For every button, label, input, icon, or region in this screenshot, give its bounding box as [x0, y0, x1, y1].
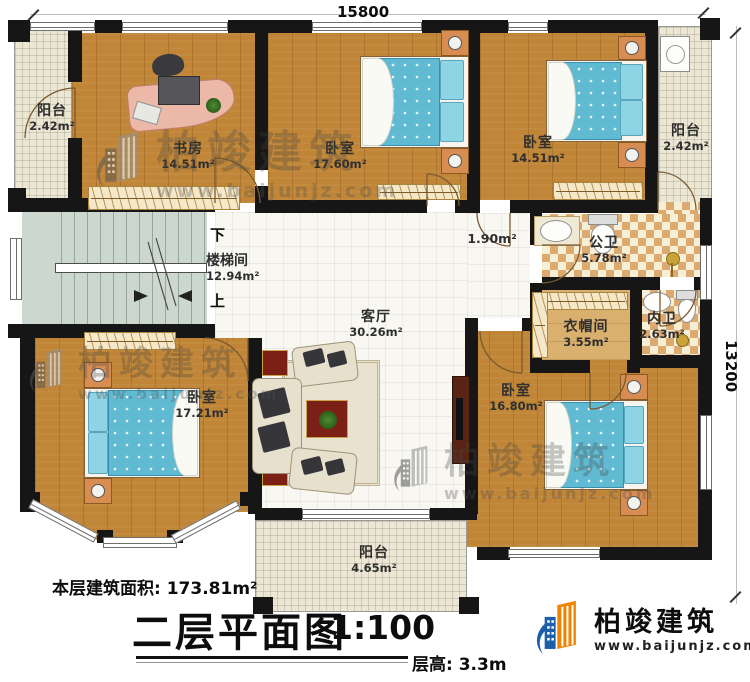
page-title: 二层平面图: [132, 600, 347, 658]
wardrobe-rack: [544, 292, 628, 310]
brand-logo-icon: [532, 598, 586, 656]
washing-machine: [660, 36, 690, 72]
title-underline: [136, 656, 408, 659]
room-bedroom-br-label: 卧室 16.80m²: [468, 384, 564, 413]
wardrobe-rack: [377, 184, 461, 200]
window: [312, 22, 422, 31]
floor-height-text: 层高: 3.3m: [412, 650, 507, 675]
brand-logo-block: 柏竣建筑 www.baijunjz.com: [532, 598, 750, 656]
brand-name: 柏竣建筑: [594, 600, 750, 639]
bed-pillow: [440, 102, 464, 142]
washing-machine-door: [666, 45, 685, 64]
nightstand: [441, 148, 469, 174]
window-bay: [103, 537, 177, 548]
plant: [319, 411, 337, 429]
sliding-door: [302, 509, 430, 519]
window: [122, 22, 228, 31]
room-balcony-tr-label: 阳台 2.42m²: [638, 124, 734, 153]
wall-segment: [455, 200, 467, 213]
wall-segment: [255, 26, 268, 170]
room-bedroom-tr-label: 卧室 14.51m²: [490, 136, 586, 165]
wardrobe-rack: [88, 186, 240, 210]
room-hall-label: 1.90m²: [444, 232, 540, 246]
wall-segment: [627, 360, 640, 373]
room-public-bath-label: 公卫 5.78m²: [556, 236, 652, 265]
bed-pillow: [620, 64, 643, 100]
scale-text: 1:100: [330, 608, 435, 647]
wall-segment: [255, 200, 427, 213]
nightstand: [84, 478, 112, 504]
wall-segment: [430, 508, 477, 520]
room-balcony-bottom-label: 阳台 4.65m²: [326, 546, 422, 575]
wall-segment: [95, 20, 122, 33]
nightstand: [620, 490, 648, 516]
bed-pillow: [624, 406, 644, 444]
plant: [206, 98, 221, 113]
monitor: [158, 76, 200, 105]
wall-segment: [228, 20, 312, 33]
sink: [643, 292, 671, 312]
bed-blanket: [546, 402, 572, 488]
tv-screen: [456, 398, 463, 440]
shower-hose: [671, 263, 673, 277]
window: [508, 549, 600, 558]
wall-segment: [477, 547, 510, 560]
window: [10, 238, 22, 300]
wall-segment: [548, 20, 658, 33]
nightstand: [620, 374, 648, 400]
title-underline-thin: [136, 662, 408, 663]
wardrobe-rack: [84, 332, 176, 350]
nightstand: [441, 30, 469, 56]
window: [508, 22, 548, 31]
bed-blanket: [548, 62, 576, 140]
wall-segment: [68, 138, 82, 203]
stair-up-label: 上: [210, 290, 225, 311]
room-public-bath-floor: [658, 202, 700, 214]
floor-plan-page: 15800 13200: [0, 0, 750, 682]
room-bedroom-top-label: 卧室 17.60m²: [292, 142, 388, 171]
wall-segment: [240, 492, 256, 506]
sofa-armchair: [288, 447, 358, 496]
dimension-top: 15800: [337, 3, 397, 21]
room-living-label: 客厅 30.26m²: [328, 310, 424, 339]
wardrobe-rack: [553, 182, 643, 200]
nightstand: [84, 362, 112, 388]
dimension-right: 13200: [722, 340, 740, 392]
room-stairwell-label: 楼梯间 12.94m²: [206, 254, 276, 283]
room-study-label: 书房 14.51m²: [140, 142, 236, 171]
room-bedroom-bl-label: 卧室 17.21m²: [154, 391, 250, 420]
wall-segment: [542, 277, 660, 290]
wall-segment: [8, 20, 30, 42]
window: [30, 22, 95, 31]
wall-segment: [20, 330, 35, 512]
wall-segment: [459, 597, 479, 614]
floor-area-text: 本层建筑面积: 173.81m²: [52, 574, 257, 599]
stair-down-label: 下: [210, 224, 225, 245]
wall-segment: [68, 26, 82, 82]
wall-segment: [510, 200, 658, 213]
window: [700, 415, 712, 490]
wall-segment: [600, 547, 710, 560]
stair-rail: [55, 263, 207, 273]
room-hall-floor: [467, 213, 530, 318]
brand-url: www.baijunjz.com: [594, 639, 750, 654]
nightstand: [618, 36, 646, 60]
side-table: [262, 350, 288, 376]
bed-blanket: [362, 58, 394, 146]
dim-tick-icon: [27, 9, 39, 21]
room-balcony-tl-label: 阳台 2.42m²: [4, 104, 100, 133]
wall-segment: [530, 360, 590, 373]
wall-segment: [700, 18, 720, 40]
bed-pillow: [440, 60, 464, 100]
bed-pillow: [88, 432, 108, 474]
bed-pillow: [624, 446, 644, 484]
wall-segment: [255, 508, 302, 520]
coffee-table: [306, 400, 348, 438]
room-cloakroom-label: 衣帽间 3.55m²: [538, 320, 634, 349]
bed-pillow: [88, 392, 108, 432]
stair-landing: [22, 212, 58, 324]
dim-line-right: [736, 26, 737, 604]
window: [700, 245, 712, 300]
shower-head: [666, 252, 680, 266]
